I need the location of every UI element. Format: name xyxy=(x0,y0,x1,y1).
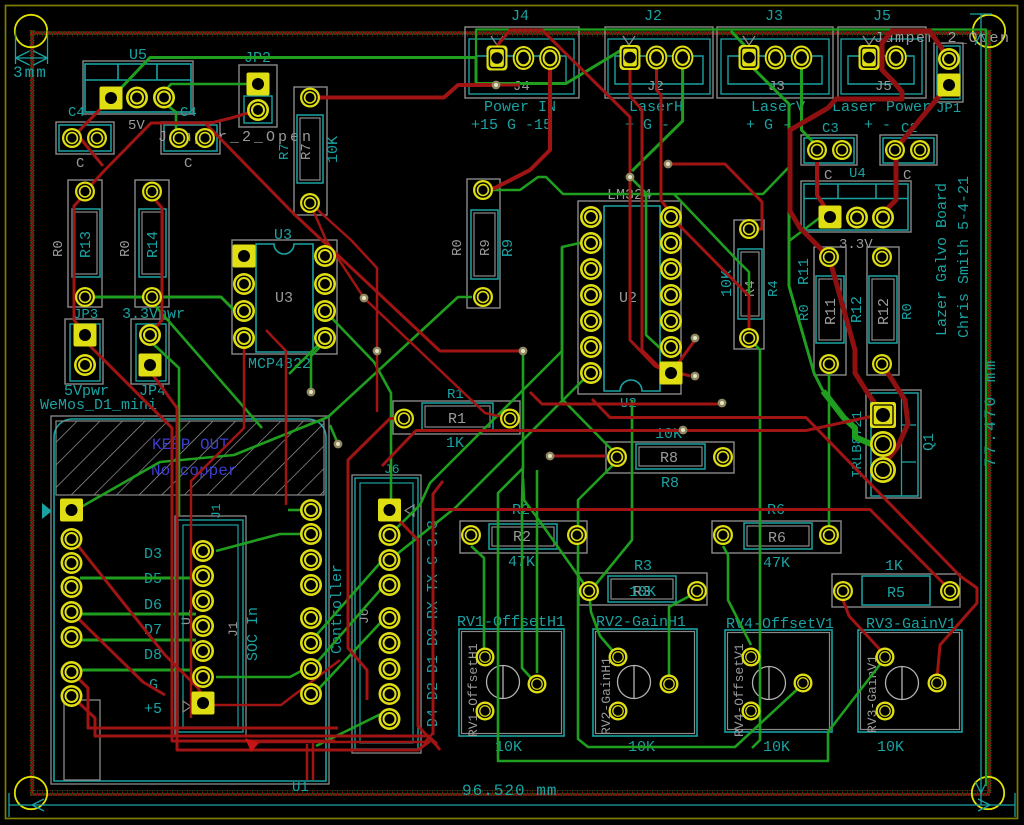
svg-text:R14: R14 xyxy=(145,231,162,258)
svg-text:D6: D6 xyxy=(144,597,162,614)
svg-text:+5: +5 xyxy=(144,701,162,718)
svg-text:3.3Vpwr: 3.3Vpwr xyxy=(122,306,185,323)
svg-text:+ -: + - xyxy=(864,117,891,134)
svg-text:R5: R5 xyxy=(887,585,905,602)
svg-text:3mm: 3mm xyxy=(13,64,48,82)
svg-text:77.470 mm: 77.470 mm xyxy=(982,358,1000,467)
svg-text:J6: J6 xyxy=(357,608,372,624)
svg-text:D3: D3 xyxy=(144,546,162,563)
svg-text:U3: U3 xyxy=(275,290,293,307)
svg-text:U1: U1 xyxy=(292,780,309,796)
svg-text:SOC In: SOC In xyxy=(245,607,262,661)
svg-text:+ G -: + G - xyxy=(746,117,791,134)
svg-text:J3: J3 xyxy=(765,8,783,25)
svg-text:Chris Smith 5-4-21: Chris Smith 5-4-21 xyxy=(956,176,973,338)
svg-text:Q1: Q1 xyxy=(921,433,938,451)
svg-text:MCP4822: MCP4822 xyxy=(248,356,311,373)
svg-text:R9: R9 xyxy=(478,239,494,256)
svg-text:R8: R8 xyxy=(660,450,678,467)
svg-text:+15 G -15: +15 G -15 xyxy=(471,117,552,134)
svg-text:Power IN: Power IN xyxy=(484,99,556,116)
svg-text:R8: R8 xyxy=(661,475,679,492)
svg-text:J5: J5 xyxy=(873,8,891,25)
svg-text:Laser Power: Laser Power xyxy=(832,99,931,116)
svg-text:WeMos_D1_mini: WeMos_D1_mini xyxy=(40,397,157,414)
svg-text:R0: R0 xyxy=(900,303,916,320)
svg-text:C4: C4 xyxy=(68,105,85,121)
svg-text:47K: 47K xyxy=(763,555,790,572)
svg-text:C: C xyxy=(184,156,192,172)
svg-text:1K: 1K xyxy=(446,435,464,452)
svg-text:R6: R6 xyxy=(768,530,786,547)
svg-text:R4: R4 xyxy=(766,280,782,297)
svg-text:C3: C3 xyxy=(822,121,839,137)
svg-text:J2: J2 xyxy=(644,8,662,25)
svg-text:10K: 10K xyxy=(325,136,342,163)
svg-text:96.520 mm: 96.520 mm xyxy=(462,782,557,800)
svg-text:R12: R12 xyxy=(876,298,893,325)
svg-text:JP1: JP1 xyxy=(936,101,961,117)
svg-text:R11: R11 xyxy=(823,298,840,325)
svg-text:R0: R0 xyxy=(51,240,67,257)
svg-text:R0: R0 xyxy=(450,239,466,256)
svg-text:R1: R1 xyxy=(448,411,466,428)
svg-text:1K: 1K xyxy=(885,558,903,575)
svg-text:J1: J1 xyxy=(209,503,224,519)
svg-text:U3: U3 xyxy=(274,227,292,244)
svg-text:J5: J5 xyxy=(875,79,892,95)
svg-text:J1: J1 xyxy=(226,621,241,637)
svg-text:R9: R9 xyxy=(500,239,517,257)
svg-text:10K: 10K xyxy=(763,739,790,756)
svg-text:10K: 10K xyxy=(877,739,904,756)
svg-text:RV2-GainH1: RV2-GainH1 xyxy=(599,657,614,735)
svg-text:R3: R3 xyxy=(634,558,652,575)
svg-text:R0: R0 xyxy=(118,240,134,257)
svg-text:R7: R7 xyxy=(277,143,293,160)
svg-text:3.3V: 3.3V xyxy=(839,237,873,253)
svg-text:KEEP OUT: KEEP OUT xyxy=(152,436,229,454)
svg-text:LaserV: LaserV xyxy=(751,99,805,116)
svg-text:10K: 10K xyxy=(629,584,656,601)
svg-text:C4: C4 xyxy=(180,105,197,121)
svg-text:C: C xyxy=(76,156,84,172)
svg-text:J4: J4 xyxy=(513,79,530,95)
svg-text:R11: R11 xyxy=(796,258,813,285)
svg-text:J4: J4 xyxy=(511,8,529,25)
svg-text:LaserH: LaserH xyxy=(629,99,683,116)
svg-text:U2: U2 xyxy=(619,290,637,307)
svg-text:R12: R12 xyxy=(849,296,866,323)
svg-text:R13: R13 xyxy=(78,231,95,258)
svg-text:10K: 10K xyxy=(655,426,682,443)
svg-text:Lazer Galvo Board: Lazer Galvo Board xyxy=(934,183,951,336)
svg-text:JP3: JP3 xyxy=(73,307,98,323)
svg-text:R7: R7 xyxy=(299,143,315,160)
svg-text:+ G -: + G - xyxy=(625,117,670,134)
svg-text:U4: U4 xyxy=(849,166,866,182)
